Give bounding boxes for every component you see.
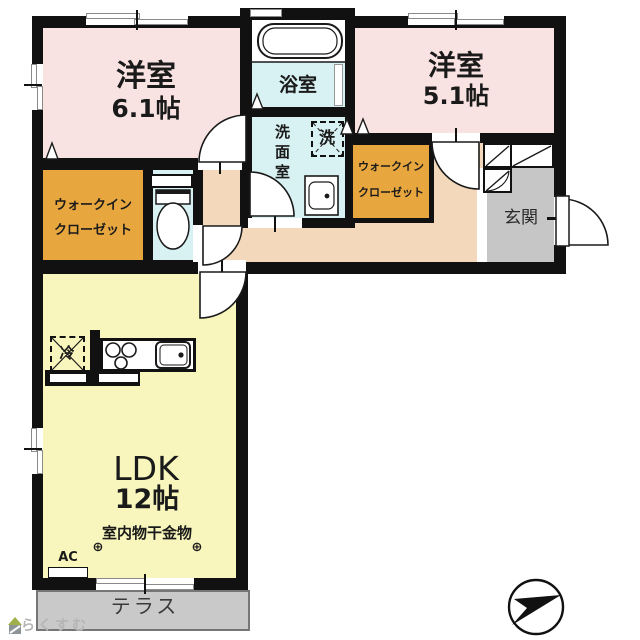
wall-wing-south	[246, 262, 566, 274]
wic-left-floor	[43, 170, 143, 260]
window-pane	[96, 578, 146, 584]
wall-right-outer	[554, 16, 566, 197]
wall-kitchen-stub	[90, 330, 100, 372]
window-tick	[455, 10, 457, 30]
window-tick	[136, 10, 138, 30]
window-pane	[454, 19, 504, 25]
kitchen-cabinet	[50, 374, 86, 382]
bedroom2-label: 洋室	[428, 52, 484, 80]
compass-arrow	[512, 595, 561, 625]
wall-washroom-south	[240, 218, 248, 228]
watermark-house-roof-icon	[8, 617, 22, 625]
window-pane	[408, 13, 458, 19]
window-tick	[144, 574, 146, 594]
window-bath-top	[250, 9, 282, 17]
bath-door	[334, 64, 343, 106]
wall-bedroom2-south	[480, 133, 566, 143]
wall-bath-washroom	[240, 107, 352, 117]
bath-label: 浴室	[279, 76, 317, 95]
window-pane	[144, 584, 194, 590]
wall-bedroom1-south	[32, 158, 198, 170]
bedroom2-size: 5.1帖	[423, 84, 490, 108]
laundry-hook-symbol: ⊕	[93, 541, 104, 554]
door-opening-entrance	[554, 197, 566, 245]
watermark-house-body-icon	[9, 625, 21, 634]
laundry-hardware-label: 室内物干金物	[102, 526, 192, 541]
wall-ldk-south	[194, 578, 248, 590]
floor-plan: 洋室 6.1帖 洋室 5.1帖 浴室 洗面室 洗 ウォークイン クローゼット ウ…	[0, 0, 640, 640]
door-tick	[219, 152, 221, 174]
wic-right-label-line1: ウォークイン	[358, 161, 424, 172]
wic-right-label-line2: クローゼット	[358, 187, 424, 198]
ldk-size: 12帖	[115, 486, 180, 513]
wic-left-label-line2: クローゼット	[54, 224, 132, 237]
washroom-label: 洗面室	[274, 124, 289, 184]
watermark-house-slash	[10, 626, 20, 633]
laundry-hook-symbol: ⊕	[192, 541, 203, 554]
door-arc-entrance	[562, 199, 608, 245]
door-tick	[221, 256, 223, 278]
door-tick	[455, 128, 457, 148]
window-tick	[24, 84, 42, 86]
wall-ldk-south	[32, 578, 96, 590]
washer-label: 洗	[319, 130, 335, 146]
kitchen-cabinet	[99, 374, 138, 382]
terrace-label: テラス	[111, 596, 180, 616]
toilet-shelf	[150, 174, 193, 188]
wall-bath-west	[240, 16, 252, 228]
window-pane	[86, 13, 140, 19]
wic-right-floor	[353, 145, 429, 218]
bedroom1-size: 6.1帖	[111, 96, 180, 121]
shoe-cabinet	[483, 143, 512, 168]
shoe-cabinet	[483, 168, 512, 193]
window-tick	[24, 448, 42, 450]
ac-label: AC	[58, 551, 78, 564]
window-pane	[37, 450, 43, 474]
kitchen-worktop	[100, 338, 196, 372]
window-pane	[134, 19, 188, 25]
compass-icon	[509, 580, 563, 634]
fridge-label: 冷	[59, 346, 74, 361]
entrance-label: 玄関	[504, 210, 538, 227]
door-tick	[547, 217, 556, 220]
ac-unit	[48, 567, 88, 578]
door-opening-toilet	[193, 225, 203, 262]
bath-tub-area	[250, 20, 345, 62]
shoe-cabinet	[510, 143, 554, 168]
wic-left-label-line1: ウォークイン	[54, 199, 132, 212]
watermark-text: らくすむ	[21, 619, 89, 633]
wall-ldk-east	[236, 262, 248, 590]
door-tick	[274, 212, 276, 232]
ldk-label: LDK	[113, 452, 178, 485]
bedroom1-label: 洋室	[116, 62, 176, 92]
wall-wing-south	[32, 260, 198, 274]
window-pane	[37, 86, 43, 110]
